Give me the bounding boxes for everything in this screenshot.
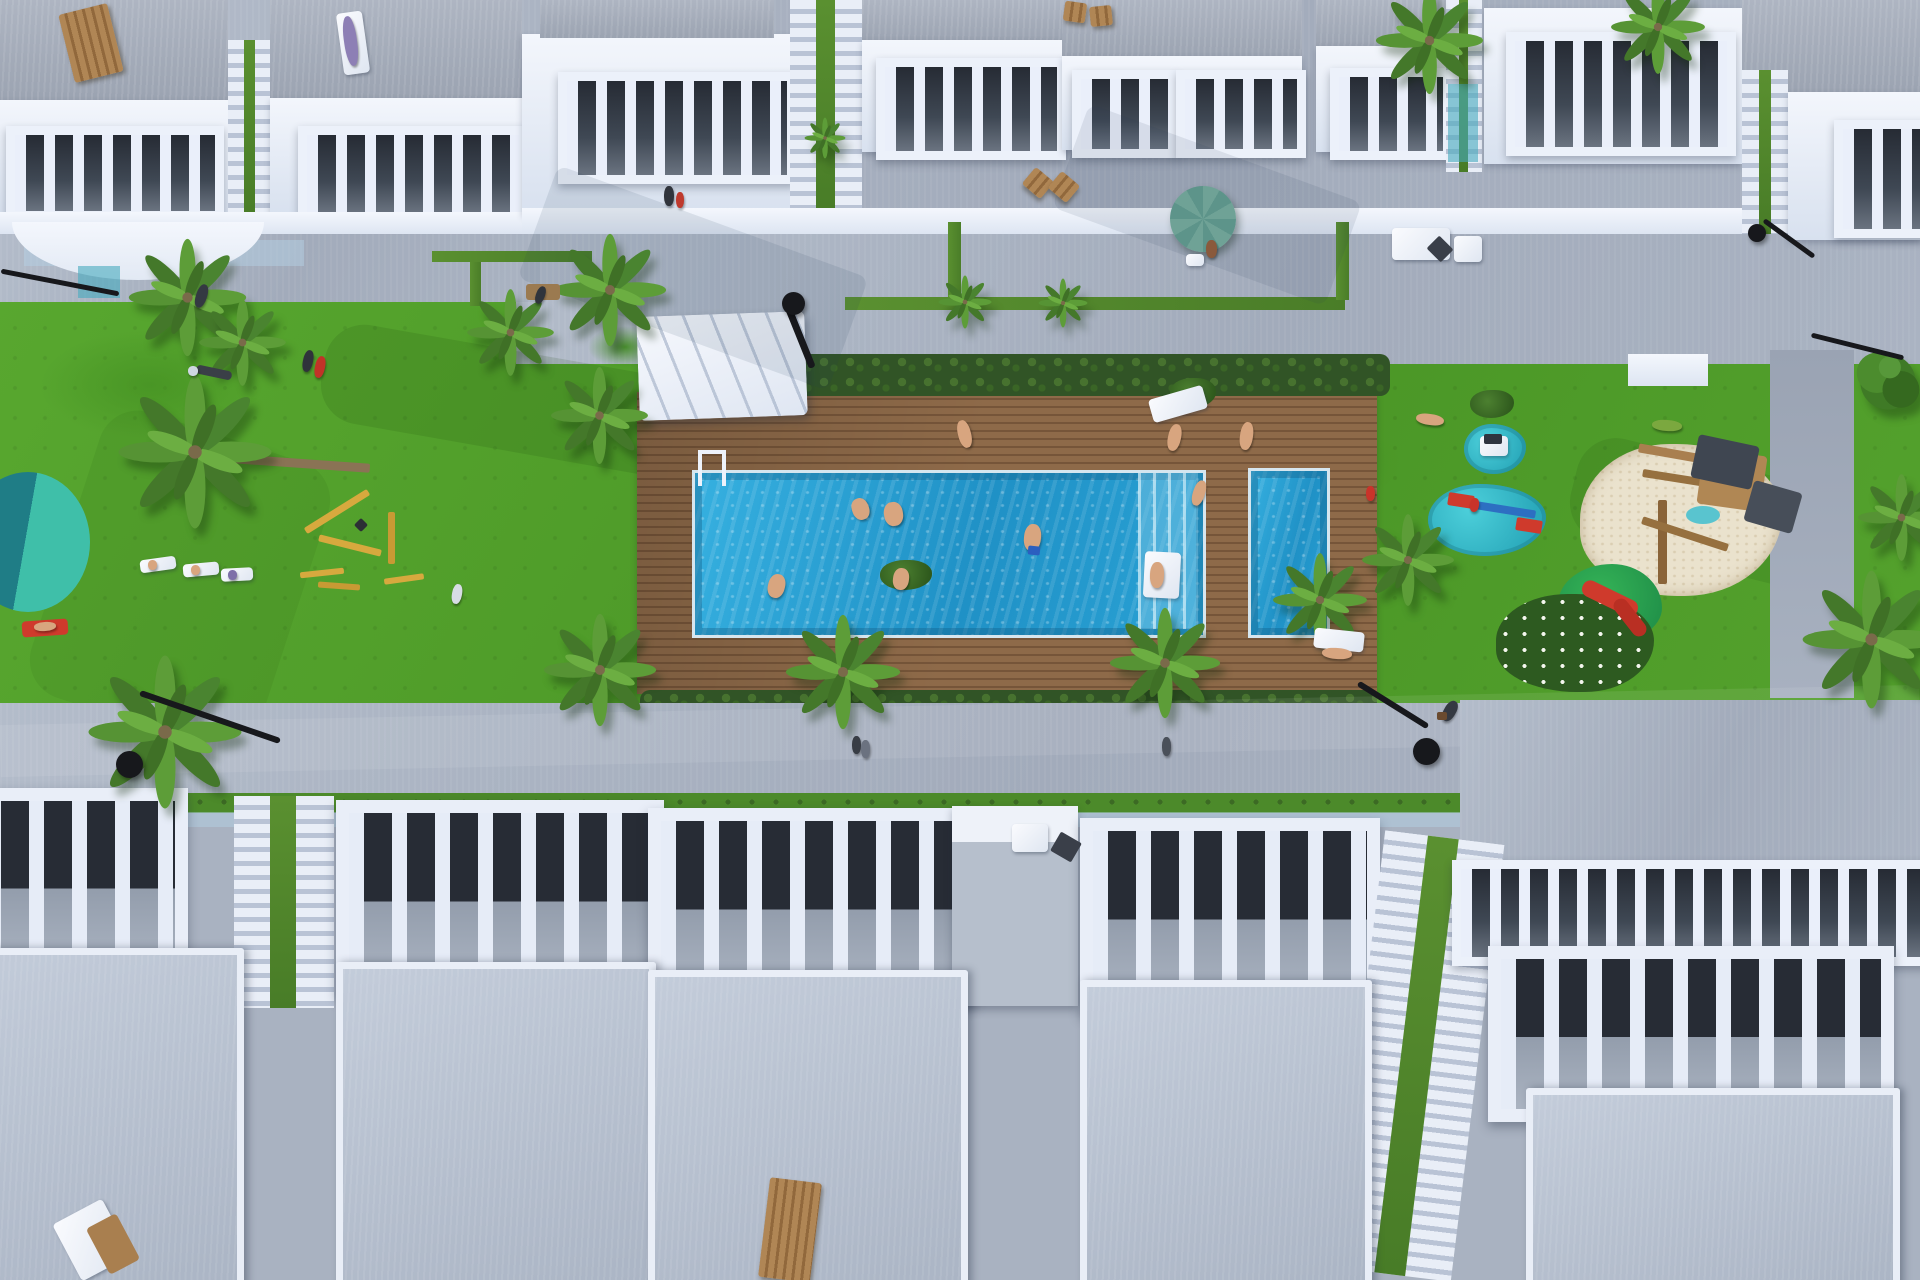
sunbather [148,560,157,570]
palm-tree [939,276,991,328]
terrace-table [1454,236,1482,262]
gym-bar [388,512,395,564]
palm-sprout [805,118,845,158]
roof-chair [1089,5,1113,27]
townhouse-roof-4 [1080,980,1372,1280]
patio-table [1012,824,1048,852]
cyclist-head [188,366,198,376]
palm-tree [1859,475,1920,560]
balcony-top-2 [298,126,528,222]
lamp-head [1748,224,1766,242]
palm-tree [1111,609,1219,717]
terrace-person [664,186,674,206]
palm-tree [787,616,899,728]
palm-tree [1612,0,1704,73]
palm-tree [90,657,240,807]
sunbather [191,565,200,575]
towel [221,567,254,582]
bag [1437,712,1447,720]
roof-top-3 [540,0,774,38]
patio-umbrella [1170,186,1236,252]
balcony-top-4 [876,58,1066,160]
aerial-render-scene [0,0,1920,1280]
stairs-top-4 [1742,70,1788,234]
walker [852,736,861,754]
palm-tree [1804,572,1920,707]
lamp-head [116,751,143,778]
balcony-top-1 [6,126,224,220]
stairs-top-2 [790,0,862,216]
sunbather [228,570,237,580]
toy-car-top [1484,434,1502,444]
table [1186,254,1204,266]
splash-spot [1686,506,1720,524]
walker [1162,737,1171,756]
swim-shorts [1028,545,1041,555]
palm-tree [1039,279,1087,327]
pool-ladder [698,450,726,486]
walker [861,740,870,758]
palm-tree [552,368,647,463]
townhouse-roof-5 [1526,1088,1900,1280]
townhouse-roof-2 [336,962,656,1280]
lamp-head [782,292,805,315]
lamp-head [1413,738,1440,765]
pool-hut [1628,354,1708,386]
balcony-top-8 [1834,120,1920,238]
water-slide [1448,84,1478,162]
play-post [1658,500,1667,584]
townhouse-stairs-1 [234,796,334,1008]
roof-chair [1063,1,1088,24]
terrace-child [676,192,684,208]
roof-top-4 [862,0,1062,42]
palm-tree [545,615,655,725]
stairs-top-1 [228,40,272,218]
umbrella-person [1206,240,1217,258]
roof-top-2 [270,0,522,100]
palm-tree [555,235,665,345]
walk-green-strip [845,297,1345,310]
palm-tree [1377,0,1482,93]
fallen-palm-canopy [120,377,270,527]
balcony-top-3 [558,72,796,184]
palm-tree [1363,515,1453,605]
child-red [1366,486,1375,501]
walk-right-extra [1460,700,1920,862]
